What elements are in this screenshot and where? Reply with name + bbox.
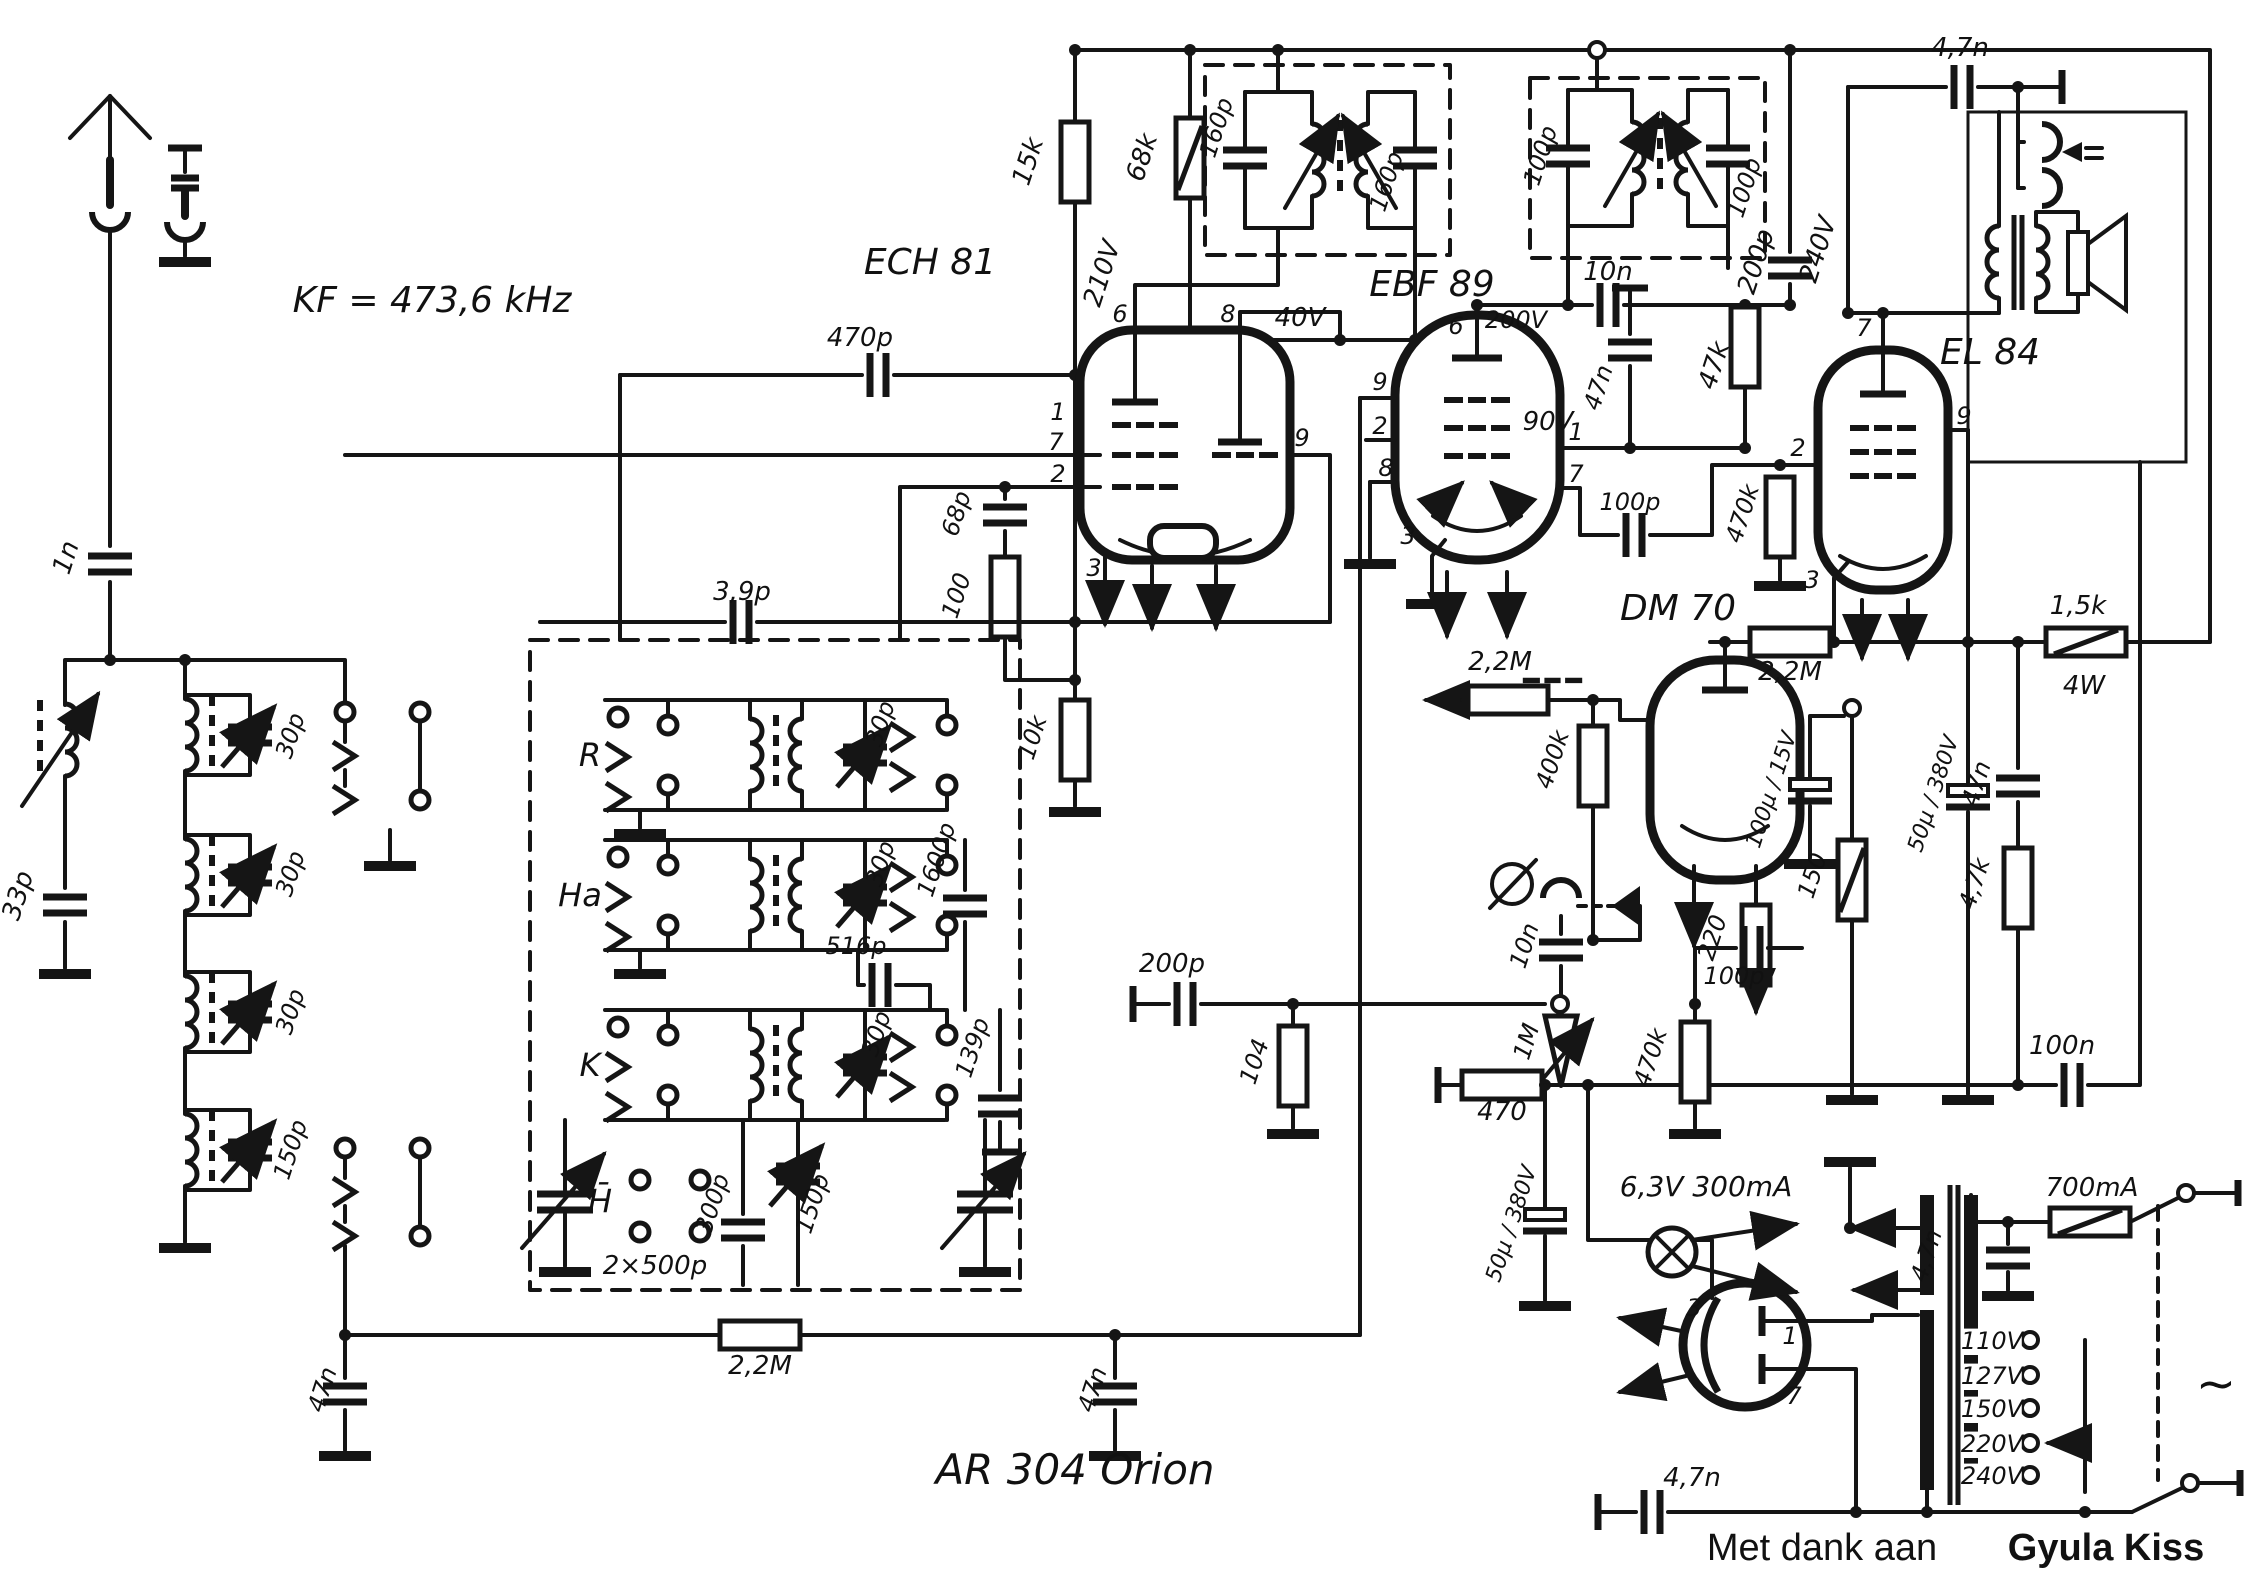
tube-el84-label: EL 84 [1940,332,2040,373]
band-k: K [580,1046,604,1084]
res-2m2-b-symbol [1750,628,1830,656]
el84-pin3: 3 [1804,566,1819,594]
el84-pin7: 7 [1856,314,1872,342]
if-frequency: KF = 473,6 kHz [293,280,573,321]
ebf89-pin7: 7 [1568,460,1584,488]
hv-winding [1920,1310,1934,1490]
res-2m2-agc: 2,2M [728,1351,792,1381]
res-470: 470 [1477,1097,1527,1127]
tap-240: 240V [1961,1462,2025,1490]
res-400k-symbol [1579,726,1607,806]
res-2m2-b: 2,2M [1758,657,1822,687]
tube-ebf89-label: EBF 89 [1369,264,1494,305]
cap-470p: 470p [827,323,893,353]
res-15k-symbol [1061,122,1089,202]
res-2m2-a-symbol [1468,686,1548,714]
res-4k7-symbol [2004,848,2032,928]
cap-3p9: 3,9p [713,577,771,607]
tap-127: 127V [1961,1362,2025,1390]
model: AR 304 Orion [932,1445,1214,1494]
res-2m2-a: 2,2M [1468,647,1532,677]
cap-10n: 10n [1583,257,1633,287]
ebf89-pin1: 1 [1568,418,1583,446]
cap-4n7-btm: 4,7n [1663,1463,1721,1493]
res-68k-symbol [1176,118,1204,198]
band-r: R [579,736,601,774]
ech81-pin8: 8 [1220,300,1235,328]
ech81-pin7: 7 [1048,428,1064,456]
tap-220: 220V [1961,1430,2025,1458]
ech81-pin1: 1 [1050,398,1065,426]
res-10k-symbol [1061,700,1089,780]
cap-100u-symbol [1788,779,1832,801]
schematic-canvas: KF = 473,6 kHz1n33p30p30p30p150pRHaKH̄3,… [0,0,2250,1585]
cap-100p-det: 100p [1703,962,1764,990]
pilot-lamp-label: 6,3V 300mA [1620,1170,1792,1203]
ebf89-pin9: 9 [1372,368,1387,396]
ebf89-pin2: 2 [1372,412,1387,440]
cap-100n: 100n [2029,1031,2095,1061]
cap-50u-a-symbol [1523,1209,1567,1231]
speaker-magnet-symbol [2068,232,2088,294]
res-1k5-symbol [2046,628,2126,656]
res-1k5: 1,5k [2050,591,2107,621]
res-470k-det-symbol [1681,1022,1709,1102]
res-2m2-agc-symbol [720,1321,800,1349]
cap-4n7-top: 4,7n [1931,33,1989,63]
ebf89-pin6: 6 [1448,312,1463,340]
mains-ac: ~ [2196,1356,2236,1412]
res-150-symbol [1838,840,1866,920]
v-200: 200V [1485,306,1549,334]
schematic-page: KF = 473,6 kHz1n33p30p30p30p150pRHaKH̄3,… [0,0,2250,1585]
res-1k5-w: 4W [2063,671,2107,701]
tap-150: 150V [1961,1395,2025,1423]
paper-background [0,0,2250,1585]
res-100-symbol [991,557,1019,637]
res-470-symbol [1462,1071,1542,1099]
tube-ech81-label: ECH 81 [864,242,996,283]
el84-pin9: 9 [1956,402,1971,430]
v-40: 40V [1275,303,1328,333]
fuse-label: 700mA [2046,1173,2139,1203]
band-h: H̄ [588,1181,612,1220]
cap-200p-det: 200p [1139,949,1205,979]
tube-dm70-label: DM 70 [1620,588,1736,629]
band-ha: Ha [558,876,602,914]
ebf89-pin8: 8 [1378,454,1393,482]
ebf89-pin3: 3 [1400,522,1415,550]
res-470k-g-symbol [1766,477,1794,557]
cap-100p-cpl: 100p [1599,488,1660,516]
rect-pin1: 1 [1782,1322,1797,1350]
res-104-symbol [1279,1026,1307,1106]
tap-110: 110V [1961,1327,2025,1355]
ech81-pin2: 2 [1050,460,1065,488]
ech81-pin3: 3 [1086,554,1101,582]
ech81-pin6: 6 [1112,300,1127,328]
rect-pin7: 7 [1786,1382,1802,1410]
el84-pin2: 2 [1790,434,1805,462]
credit-prefix: Met dank aan [1707,1527,1937,1569]
credit-name: Gyula Kiss [2008,1527,2204,1569]
cap-516p: 516p [825,932,886,960]
rect-pin3: 3 [1686,1294,1701,1322]
fuse-symbol [2050,1208,2130,1236]
tuning-gang: 2×500p [603,1251,707,1281]
ech81-pin9: 9 [1294,424,1309,452]
